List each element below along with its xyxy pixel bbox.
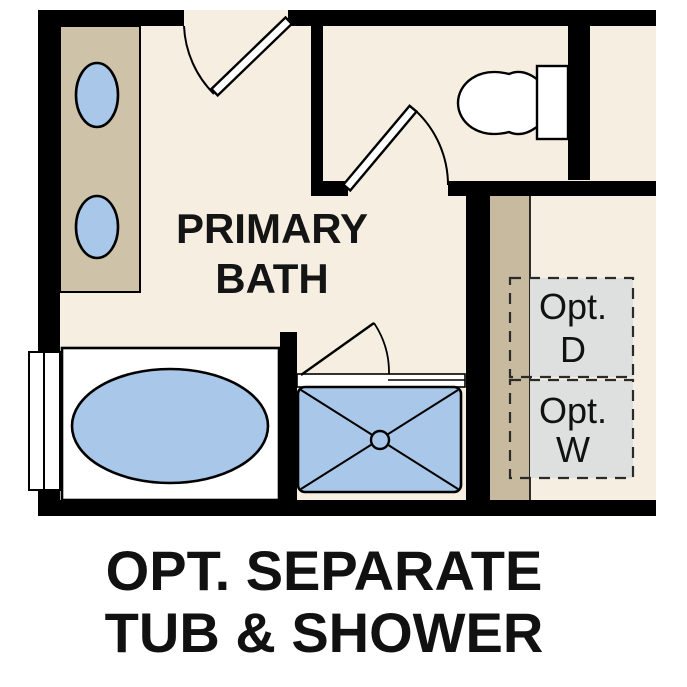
wall-wc-right [568, 26, 590, 180]
room-label-line1: PRIMARY [176, 205, 368, 252]
shower-drain [371, 431, 389, 449]
washer-label-line2: W [556, 429, 590, 470]
sink-top [76, 63, 118, 127]
washer-label-line1: Opt. [539, 390, 607, 431]
bathtub [62, 348, 279, 500]
floor-plan-drawing: Opt. D Opt. W PRIMARY BATH OPT. SEPARATE… [0, 0, 687, 687]
wall-top-right [288, 10, 656, 26]
dryer-label-line1: Opt. [539, 286, 607, 327]
double-sink-vanity [60, 26, 140, 292]
toilet [458, 66, 568, 139]
plan-caption: OPT. SEPARATE TUB & SHOWER [105, 539, 544, 664]
wall-bottom [38, 500, 656, 516]
caption-line1: OPT. SEPARATE [106, 539, 543, 602]
window-inner-pane [44, 352, 60, 490]
sink-bottom [76, 196, 118, 258]
window-outer-pane [29, 352, 44, 490]
window [29, 352, 60, 490]
toilet-bowl [458, 72, 538, 134]
caption-line2: TUB & SHOWER [105, 601, 544, 664]
wall-bath-laundry-divider [466, 181, 490, 500]
toilet-tank [537, 66, 568, 139]
wall-wc-left-foot [311, 181, 348, 196]
room-label-line2: BATH [215, 255, 329, 302]
wall-wc-left [311, 26, 323, 196]
wall-tub-shower-stub [280, 332, 297, 500]
tub-basin [72, 369, 268, 483]
floor-plan-page: Opt. D Opt. W PRIMARY BATH OPT. SEPARATE… [0, 0, 687, 687]
dryer-label-line2: D [560, 329, 586, 370]
